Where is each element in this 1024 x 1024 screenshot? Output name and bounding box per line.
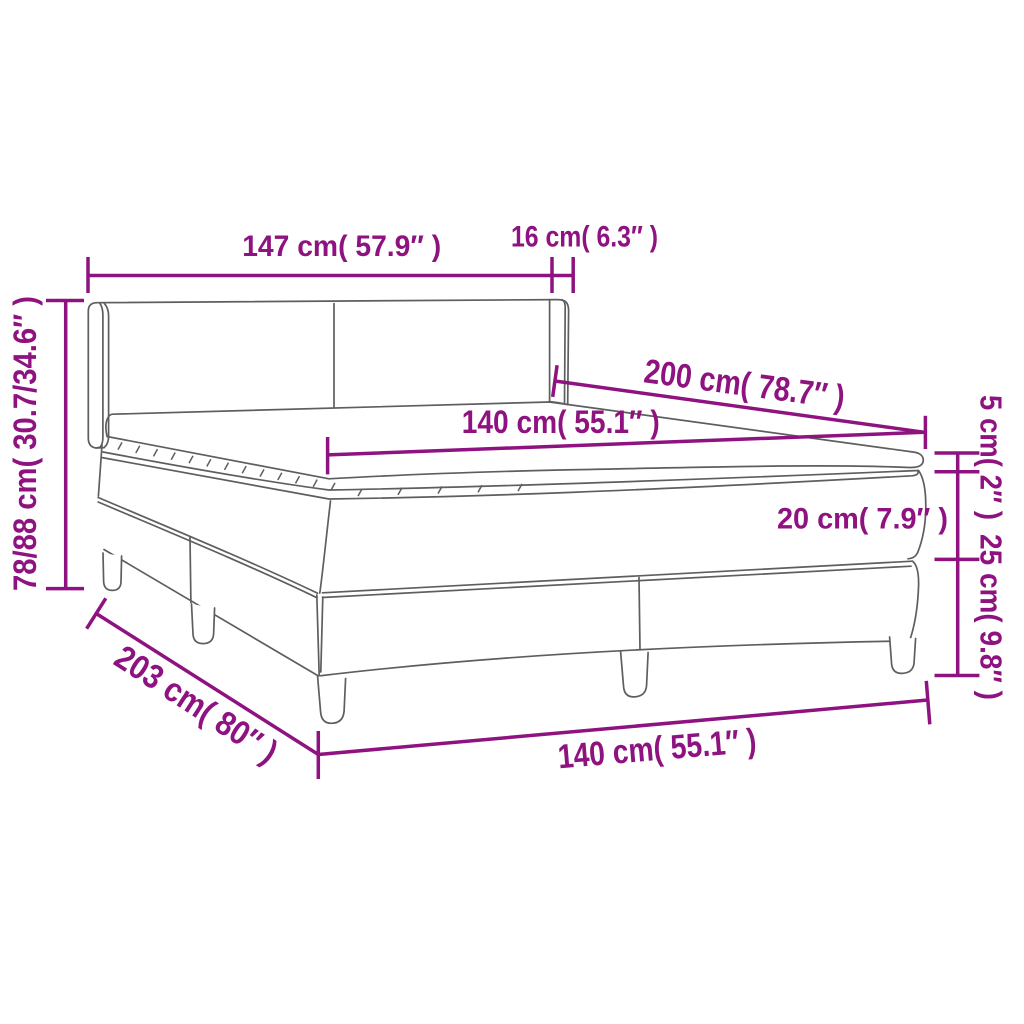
svg-text:78/88 cm( 30.7/34.6″ ): 78/88 cm( 30.7/34.6″ ) [7, 296, 43, 591]
svg-text:20 cm( 7.9″ ): 20 cm( 7.9″ ) [777, 503, 948, 536]
svg-text:147 cm( 57.9″ ): 147 cm( 57.9″ ) [242, 230, 441, 263]
svg-text:16 cm( 6.3″ ): 16 cm( 6.3″ ) [511, 221, 658, 254]
svg-text:140 cm( 55.1″ ): 140 cm( 55.1″ ) [462, 404, 660, 440]
svg-text:25 cm( 9.8″ ): 25 cm( 9.8″ ) [974, 534, 1009, 700]
svg-text:5 cm( 2″ ): 5 cm( 2″ ) [974, 395, 1009, 520]
